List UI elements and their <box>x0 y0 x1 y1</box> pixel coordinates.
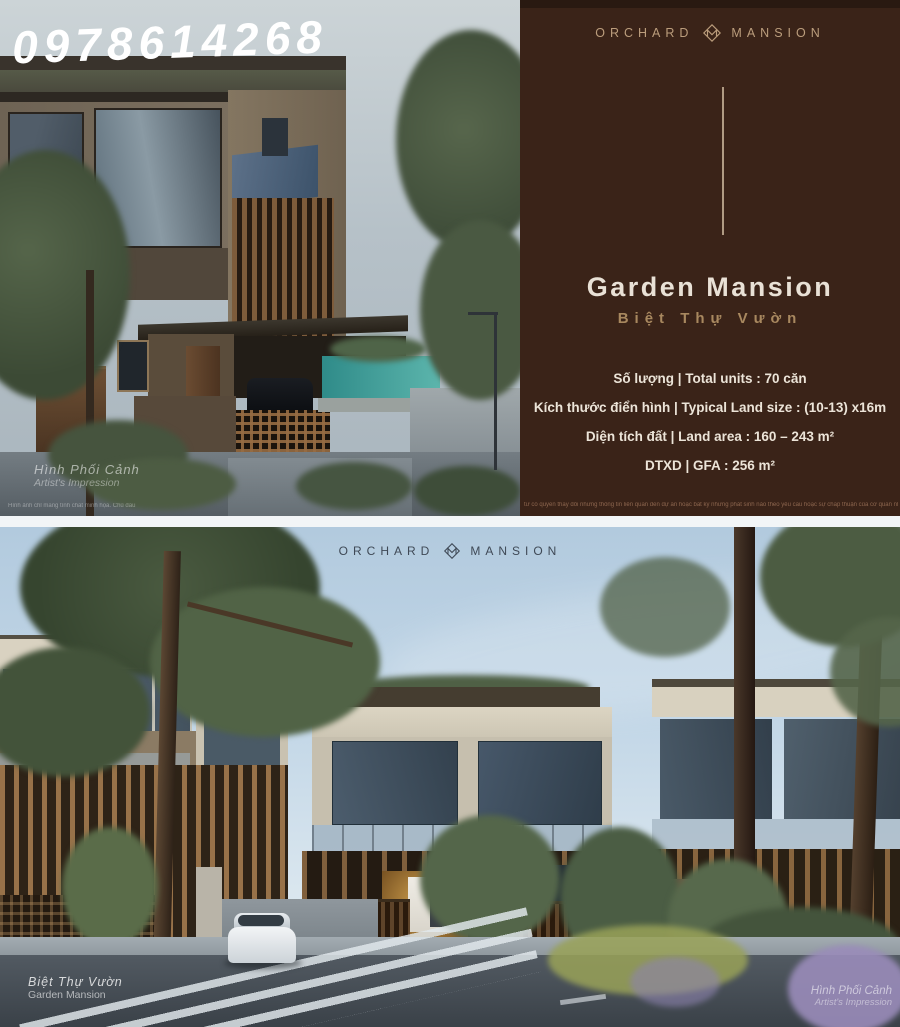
center-parapet <box>312 707 612 737</box>
street-tree-1 <box>62 827 158 947</box>
product-title: Garden Mansion <box>520 272 900 303</box>
brand-word-orchard: ORCHARD <box>595 26 693 40</box>
caption-bottom-left: Biệt Thự Vườn Garden Mansion <box>28 975 123 1001</box>
pine-canopy-left-b <box>150 587 380 737</box>
legal-disclaimer: tư có quyền thay đổi những thông tin liê… <box>524 502 898 508</box>
caption-vietnamese: Hình Phối Cảnh <box>34 462 140 477</box>
wood-slat-screen <box>232 198 334 336</box>
om-monogram-icon <box>702 24 722 42</box>
caption-bottom-right: Hình Phối Cảnh Artist's Impression <box>796 985 892 1008</box>
brand-word-orchard: ORCHARD <box>339 544 435 558</box>
caption-vietnamese: Hình Phối Cảnh <box>796 985 892 997</box>
top-villa-photo: 0978614268 Hình Phối Cảnh Artist's Impre… <box>0 0 520 516</box>
wall-mirror <box>117 340 149 392</box>
brand-word-mansion: MANSION <box>731 26 824 40</box>
spec-land-area: Diện tích đất | Land area : 160 – 243 m² <box>520 422 900 451</box>
parked-black-car <box>247 378 313 412</box>
caption-english: Artist's Impression <box>796 997 892 1008</box>
car-body <box>228 927 296 963</box>
artist-impression-caption: Hình Phối Cảnh Artist's Impression <box>34 462 140 489</box>
decorative-vertical-line <box>722 87 724 235</box>
brochure-page: 0978614268 Hình Phối Cảnh Artist's Impre… <box>0 0 900 1027</box>
purple-flowers-2 <box>630 957 720 1007</box>
white-car <box>228 913 298 969</box>
info-panel: ORCHARD MANSION Garden Mansion Biệt Thự … <box>520 0 900 516</box>
planter-green <box>330 336 426 362</box>
street-lamp-pole <box>494 312 497 470</box>
caption-english: Garden Mansion <box>28 989 123 1001</box>
photo-disclaimer-strip: Hình ảnh chỉ mang tính chất minh họa. Ch… <box>8 503 468 509</box>
spec-total-units: Số lượng | Total units : 70 căn <box>520 364 900 393</box>
section-divider <box>0 516 900 527</box>
center-glass-window-left <box>332 741 458 825</box>
car-rear-glass <box>238 915 284 926</box>
street-lamp-arm <box>468 312 498 315</box>
brand-word-mansion: MANSION <box>470 544 561 558</box>
right-villa-glass-right <box>784 719 900 819</box>
panel-top-shade <box>520 0 900 8</box>
right-villa-glass-left <box>660 719 772 819</box>
caption-english: Artist's Impression <box>34 477 140 489</box>
center-glass-window-right <box>478 741 602 825</box>
brand-logo: ORCHARD MANSION <box>520 24 900 42</box>
small-window <box>262 118 288 156</box>
caption-vietnamese: Biệt Thự Vườn <box>28 975 123 989</box>
product-subtitle-vietnamese: Biệt Thự Vườn <box>520 310 900 327</box>
entry-door <box>186 346 220 398</box>
spec-gfa: DTXD | GFA : 256 m² <box>520 451 900 480</box>
pine-canopy-right-c <box>600 557 730 657</box>
specs-list: Số lượng | Total units : 70 căn Kích thư… <box>520 364 900 480</box>
bottom-street-photo: ORCHARD MANSION Biệt Thự Vườn Garden Man… <box>0 527 900 1027</box>
om-monogram-icon <box>443 543 461 559</box>
spec-land-size: Kích thước điển hình | Typical Land size… <box>520 393 900 422</box>
brand-logo-bottom: ORCHARD MANSION <box>0 543 900 559</box>
